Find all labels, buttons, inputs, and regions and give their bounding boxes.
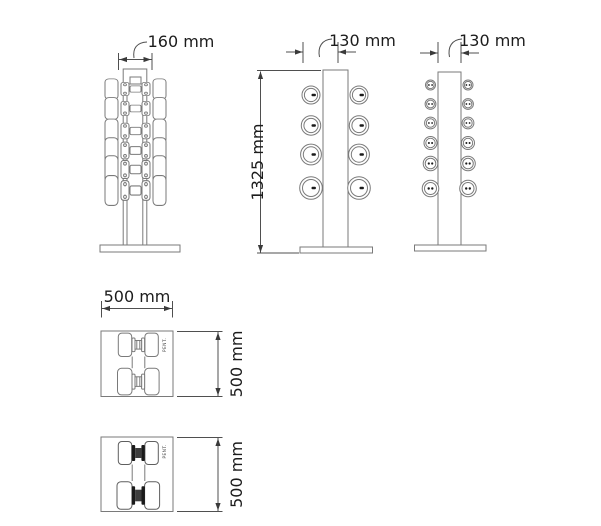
side-view-a-base xyxy=(300,247,373,253)
front-view-base xyxy=(100,245,180,252)
dimension-top-a-width: 500 mm xyxy=(102,287,173,318)
top-view-b-dumbbell-1 xyxy=(118,442,158,465)
dimension-top-a-depth: 500 mm xyxy=(177,331,246,398)
dimension-label-top-a-width: 500 mm xyxy=(104,287,171,306)
dimension-label-side-b-depth: 130 mm xyxy=(459,31,526,50)
brand-mark: PENT. xyxy=(162,338,168,352)
top-view-b: PENT. 500 mm xyxy=(101,437,246,512)
dimension-label-top-a-depth: 500 mm xyxy=(227,331,246,398)
leader-line xyxy=(134,42,147,58)
top-view-a: PENT. 500 mm 500 mm xyxy=(101,287,246,397)
dimension-label-side-a-height: 1325 mm xyxy=(248,124,267,201)
side-view-b: 130 mm xyxy=(415,31,526,251)
front-view-dumbbells xyxy=(105,79,166,206)
top-view-a-dumbbell-2 xyxy=(118,368,160,395)
top-view-a-dumbbell-1 xyxy=(118,333,158,356)
dimension-top-b-depth: 500 mm xyxy=(177,438,246,512)
dimension-side-a-depth: 130 mm xyxy=(286,31,396,63)
side-view-a: 130 mm 1325 mm xyxy=(248,31,396,253)
dimension-label-front-width: 160 mm xyxy=(148,32,215,51)
dimension-label-side-a-depth: 130 mm xyxy=(329,31,396,50)
side-view-b-base xyxy=(415,245,487,251)
top-view-b-dumbbell-2 xyxy=(117,482,160,510)
dimension-label-top-b-depth: 500 mm xyxy=(227,441,246,508)
front-view: 160 mm xyxy=(100,32,214,252)
technical-drawing-page: 160 mm xyxy=(0,0,601,526)
side-view-a-column xyxy=(323,70,348,247)
side-view-b-column xyxy=(438,72,461,245)
dimension-front-width: 160 mm xyxy=(119,32,215,70)
brand-mark: PENT. xyxy=(162,444,168,458)
dimension-side-b-depth: 130 mm xyxy=(420,31,526,63)
dumbbell-rack-drawing: 160 mm xyxy=(0,0,601,526)
